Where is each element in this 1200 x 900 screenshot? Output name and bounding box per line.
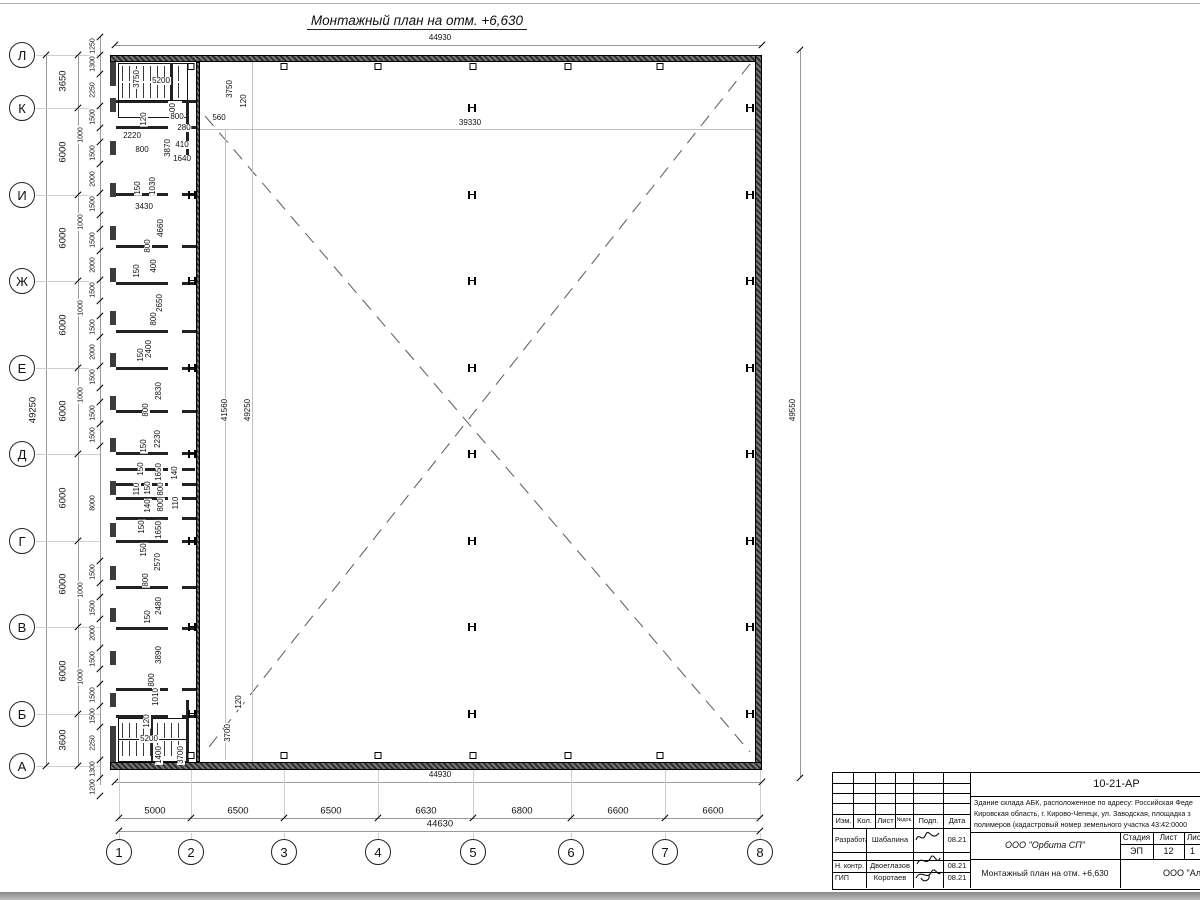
tb-header-podp: Подп.: [914, 814, 943, 828]
wall-pier: [110, 608, 116, 622]
window-dim: 2000: [90, 343, 97, 361]
sheet-bottom-edge: [0, 892, 1200, 900]
detail-dim: 150: [144, 480, 152, 495]
tb-sheet-label: Лист: [1153, 832, 1184, 844]
window-dim: 1500: [90, 404, 97, 422]
partition-wall: [116, 367, 168, 370]
row-axis-bubble: Е: [9, 355, 35, 381]
col-span-dim: 6630: [414, 806, 437, 816]
column-mark: [375, 63, 382, 70]
column-symbol: [468, 710, 476, 718]
wall-pier: [110, 481, 116, 495]
detail-dim: 150: [138, 519, 146, 534]
window-dim: 1000: [78, 386, 85, 404]
col-axis-bubble: 5: [460, 839, 486, 865]
tb-header-ndok: №док.: [896, 814, 913, 828]
detail-dim: 3700: [224, 723, 232, 743]
column-symbol: [746, 191, 754, 199]
total-dim-line: [46, 55, 47, 766]
stair-treads: [122, 741, 184, 756]
detail-dim: 3750: [226, 79, 234, 99]
column-symbol: [188, 623, 196, 631]
tb-header-data: Дата: [944, 814, 970, 828]
partition-stub: [182, 245, 196, 248]
window-dim-line: [100, 37, 101, 785]
detail-dim: 800: [142, 572, 150, 587]
row-axis-bubble: К: [9, 95, 35, 121]
wall-pier: [110, 523, 116, 537]
col-span-dim: 6500: [226, 806, 249, 816]
detail-dim: 410: [174, 141, 189, 149]
wall-inner-longitudinal: [196, 62, 200, 762]
row-axis-leader: [36, 541, 100, 542]
partition-stub: [182, 468, 196, 471]
col-axis-bubble: 1: [106, 839, 132, 865]
top-total-dim: 44930: [428, 34, 452, 42]
detail-dim: 2570: [154, 552, 162, 572]
window-dim: 1000: [78, 581, 85, 599]
tb-name: Коротаев: [867, 872, 913, 884]
tb-stage-value: ЭП: [1120, 844, 1153, 859]
window-dim: 1500: [90, 368, 97, 386]
tb-address-line: Кировская область, г. Кирово-Чепецк, ул.…: [974, 808, 1200, 819]
grid-dim-line: [78, 55, 79, 766]
detail-dim: 150: [140, 542, 148, 557]
bottom-total-line: [119, 831, 760, 832]
window-dim: 1500: [90, 686, 97, 704]
column-mark: [657, 63, 664, 70]
detail-dim: 800: [157, 481, 165, 496]
partition-stub: [182, 330, 196, 333]
wall-pier: [110, 651, 116, 665]
column-mark: [188, 63, 195, 70]
column-symbol: [188, 537, 196, 545]
detail-dim: 280: [176, 124, 191, 132]
window-dim: 1500: [90, 599, 97, 617]
wall-pier: [110, 311, 116, 325]
column-symbol: [468, 450, 476, 458]
partition-stub: [182, 586, 196, 589]
column-symbol: [188, 277, 196, 285]
row-axis-bubble: Ж: [9, 268, 35, 294]
detail-dim: 2830: [155, 381, 163, 401]
column-symbol: [468, 623, 476, 631]
grid-span-dim: 6000: [58, 486, 68, 509]
column-symbol: [468, 277, 476, 285]
col-axis-extension: [284, 770, 285, 818]
row-axis-bubble: А: [9, 753, 35, 779]
detail-dim: 49550: [789, 398, 797, 422]
detail-dim: 800: [144, 238, 152, 253]
detail-dim: 400: [150, 258, 158, 273]
partition-stub: [182, 497, 196, 500]
grid-span-dim: 6000: [58, 659, 68, 682]
partition-stub: [182, 517, 196, 520]
partition-wall: [116, 282, 168, 285]
bottom-outer-dim: 44930: [428, 771, 452, 779]
column-symbol: [188, 191, 196, 199]
row-axis-bubble: Д: [9, 441, 35, 467]
wall-pier: [110, 141, 116, 155]
tb-line: [833, 852, 970, 853]
window-dim: 1500: [90, 108, 97, 126]
wall-pier: [110, 226, 116, 240]
wall-pier: [110, 438, 116, 452]
detail-dim: 41560: [221, 398, 229, 422]
column-mark: [565, 63, 572, 70]
col-axis-extension: [571, 770, 572, 818]
detail-dim: 800: [150, 311, 158, 326]
wall-right: [755, 55, 762, 770]
col-axis-bubble: 2: [178, 839, 204, 865]
detail-dim: 2230: [154, 429, 162, 449]
detail-dim: 3750: [133, 69, 141, 89]
detail-dim: 3890: [155, 645, 163, 665]
column-symbol: [746, 364, 754, 372]
col-span-dim: 5000: [143, 806, 166, 816]
wall-pier: [110, 353, 116, 367]
col-span-dim: 6600: [701, 806, 724, 816]
col-axis-bubble: 6: [558, 839, 584, 865]
detail-dim: 1650: [155, 462, 163, 482]
partition-wall: [116, 627, 168, 630]
staircase-top: [118, 63, 188, 118]
col-axis-bubble: 3: [271, 839, 297, 865]
detail-dim: 150: [140, 438, 148, 453]
window-dim: 2250: [90, 735, 97, 753]
tb-date: 08.21: [944, 872, 970, 884]
grid-span-dim: 6000: [58, 313, 68, 336]
column-mark: [188, 752, 195, 759]
detail-dim: 150: [137, 461, 145, 476]
detail-dim: 150: [134, 180, 142, 195]
detail-dim: 2480: [155, 596, 163, 616]
tb-stage-label: Стадия: [1120, 832, 1153, 844]
column-symbol: [188, 710, 196, 718]
row-axis-leader: [36, 454, 100, 455]
wall-pier: [110, 268, 116, 282]
hall-dim-line: [252, 62, 253, 766]
column-mark: [470, 63, 477, 70]
signatures: [913, 828, 943, 888]
wall-top: [110, 55, 762, 62]
tb-role: Разработал: [835, 828, 866, 852]
col-axis-extension: [760, 770, 761, 818]
col-axis-bubble: 8: [747, 839, 773, 865]
tb-name: Двоеглазов: [867, 860, 913, 872]
column-symbol: [746, 710, 754, 718]
detail-dim: 2650: [156, 293, 164, 313]
tb-design-org: ООО "Орбита СП": [970, 832, 1120, 859]
detail-dim: 1640: [172, 155, 192, 163]
column-symbol: [188, 450, 196, 458]
detail-dim: 140: [171, 465, 179, 480]
tb-sheets-value: 1: [1190, 844, 1200, 859]
detail-dim: 150: [133, 263, 141, 278]
partition-wall: [116, 688, 168, 691]
column-symbol: [468, 537, 476, 545]
hall-dim-line: [225, 130, 226, 760]
window-dim: 1500: [90, 318, 97, 336]
tb-sheet-value: 12: [1153, 844, 1184, 859]
tb-address-line: Здание склада АБК, расположенное по адре…: [974, 797, 1200, 808]
column-symbol: [468, 104, 476, 112]
detail-dim: 560: [211, 114, 226, 122]
column-mark: [375, 752, 382, 759]
detail-dim: 800: [134, 146, 149, 154]
title-block: 10-21-АР Здание склада АБК, расположенно…: [832, 772, 1200, 890]
detail-dim: 120: [140, 111, 148, 126]
drawing-title: Монтажный план на отм. +6,630: [307, 13, 527, 30]
column-symbol: [468, 191, 476, 199]
tb-line: [833, 793, 970, 794]
detail-dim: 120: [143, 713, 151, 728]
col-axis-extension: [665, 770, 666, 818]
column-mark: [281, 752, 288, 759]
window-dim: 1000: [78, 213, 85, 231]
wall-bottom: [110, 762, 762, 770]
column-symbol: [468, 364, 476, 372]
detail-dim: 2400: [145, 339, 153, 359]
detail-dim: 800: [148, 672, 156, 687]
window-dim: 1500: [90, 231, 97, 249]
column-symbol: [188, 364, 196, 372]
col-axis-extension: [191, 770, 192, 818]
column-mark: [470, 752, 477, 759]
col-axis-extension: [378, 770, 379, 818]
detail-dim: 1030: [149, 176, 157, 196]
grid-span-dim: 6000: [58, 572, 68, 595]
detail-dim: 110: [172, 496, 180, 511]
col-axis-extension: [473, 770, 474, 818]
tb-sheet-title: Монтажный план на отм. +6,630: [970, 859, 1120, 888]
grid-span-dim: 6000: [58, 140, 68, 163]
detail-dim: 150: [137, 347, 145, 362]
detail-dim: 5200: [151, 77, 171, 85]
column-symbol: [746, 537, 754, 545]
window-dim: 1500: [90, 195, 97, 213]
col-span-dim: 6600: [606, 806, 629, 816]
wall-pier: [110, 98, 116, 112]
tb-header-kol: Кол.: [854, 814, 875, 828]
grid-span-dim: 6000: [58, 399, 68, 422]
column-symbol: [746, 623, 754, 631]
right-total-line: [800, 50, 801, 778]
drawing-sheet: Монтажный план на отм. +6,630: [0, 0, 1200, 900]
detail-dim: 3870: [164, 138, 172, 158]
detail-dim: 120: [240, 93, 248, 108]
detail-dim: 49250: [244, 398, 252, 422]
tb-document-code: 10-21-АР: [970, 773, 1200, 796]
detail-dim: 1650: [155, 520, 163, 540]
window-dim: 2000: [90, 170, 97, 188]
grid-span-dim: 6000: [58, 226, 68, 249]
window-dim: 1500: [90, 426, 97, 444]
tb-line: [1184, 832, 1185, 859]
detail-dim: 800: [142, 402, 150, 417]
tb-header-list: Лист: [876, 814, 895, 828]
row-axis-bubble: Л: [9, 42, 35, 68]
window-dim: 1500: [90, 282, 97, 300]
stair-landing-line: [119, 100, 186, 101]
window-dim: 1000: [78, 668, 85, 686]
window-dim: 1300: [90, 56, 97, 74]
detail-dim: 800: [169, 113, 184, 121]
partition-stub: [182, 688, 196, 691]
tb-contractor-org: ООО "Альянс: [1120, 859, 1200, 888]
col-span-dim: 6800: [510, 806, 533, 816]
tb-role: ГИП: [835, 872, 866, 884]
window-dim: 1500: [90, 650, 97, 668]
wall-pier: [110, 183, 116, 197]
detail-dim: 1010: [152, 687, 160, 707]
col-span-dim: 6500: [319, 806, 342, 816]
detail-dim: 5200: [139, 735, 159, 743]
grid-span-dim: 3600: [58, 728, 68, 751]
detail-dim: 3430: [134, 203, 154, 211]
detail-dim: 110: [133, 482, 141, 497]
partition-stub: [182, 410, 196, 413]
window-dim: 2250: [90, 81, 97, 99]
col-axis-bubble: 4: [365, 839, 391, 865]
row-axis-bubble: Б: [9, 701, 35, 727]
tb-address-line: полимеров (кадастровый номер земельного …: [974, 819, 1200, 830]
column-mark: [565, 752, 572, 759]
col-axis-extension: [119, 770, 120, 818]
detail-dim: 800: [157, 497, 165, 512]
left-total-dim: 49250: [28, 396, 38, 424]
wall-pier: [110, 396, 116, 410]
detail-dim: 39330: [458, 119, 482, 127]
top-total-line: [115, 45, 762, 46]
column-symbol: [746, 277, 754, 285]
bottom-total-dim: 44630: [426, 819, 454, 829]
partition-wall: [116, 245, 168, 248]
window-dim: 1500: [90, 708, 97, 726]
partition-wall: [116, 330, 168, 333]
window-dim: 1200: [90, 778, 97, 796]
window-dim: 1000: [78, 126, 85, 144]
window-dim: 2000: [90, 256, 97, 274]
row-axis-bubble: Г: [9, 528, 35, 554]
tb-sheets-label: Листов: [1187, 832, 1200, 844]
detail-dim: 3700: [177, 745, 185, 765]
column-mark: [281, 63, 288, 70]
window-dim: 1500: [90, 144, 97, 162]
partition-wall: [116, 193, 168, 196]
tb-date: 08.21: [944, 828, 970, 852]
window-dim: 1250: [90, 37, 97, 55]
window-dim: 2000: [90, 625, 97, 643]
col-axis-bubble: 7: [652, 839, 678, 865]
column-symbol: [746, 450, 754, 458]
detail-dim: 2220: [122, 132, 142, 140]
detail-dim: 120: [235, 694, 243, 709]
wall-pier: [110, 693, 116, 707]
detail-dim: 1400: [155, 745, 163, 765]
column-symbol: [746, 104, 754, 112]
detail-dim: 4660: [157, 218, 165, 238]
tb-line: [833, 783, 970, 784]
window-dim: 8000: [90, 495, 97, 513]
detail-dim: 140: [144, 498, 152, 513]
hall-dim-line: [196, 129, 755, 130]
tb-line: [833, 803, 970, 804]
row-axis-bubble: В: [9, 614, 35, 640]
grid-span-dim: 3650: [58, 69, 68, 92]
tb-name: Шабалина: [867, 828, 913, 852]
tb-role: Н. контр.: [835, 860, 866, 872]
tb-date: 08.21: [944, 860, 970, 872]
wall-pier: [110, 566, 116, 580]
window-dim: 1300: [90, 760, 97, 778]
detail-dim: 150: [144, 609, 152, 624]
partition-stub: [182, 483, 196, 486]
tb-header-izm: Изм.: [834, 814, 853, 828]
row-axis-bubble: И: [9, 182, 35, 208]
window-dim: 1000: [78, 300, 85, 318]
window-dim: 1500: [90, 563, 97, 581]
column-mark: [657, 752, 664, 759]
